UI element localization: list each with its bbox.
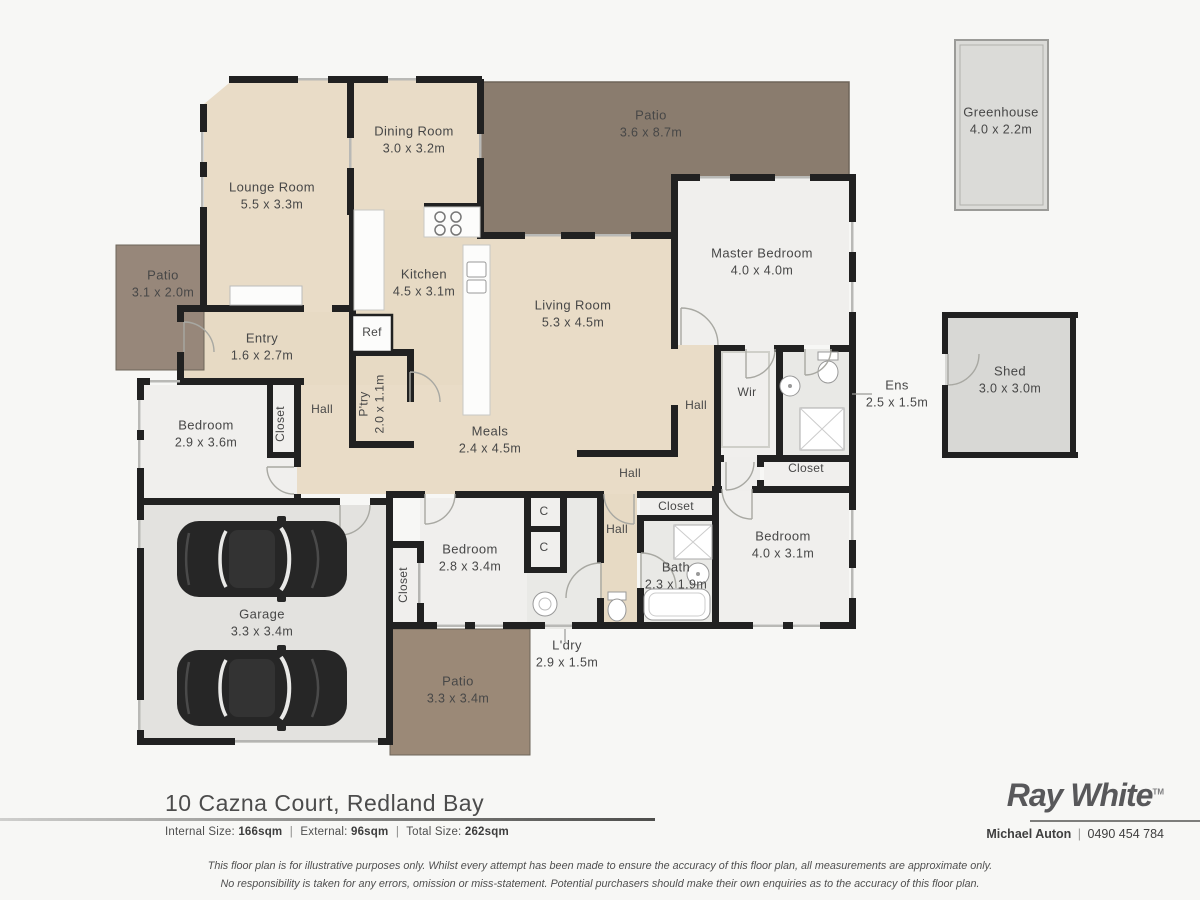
car-icon [177,645,347,731]
kitchen-counter [354,210,384,310]
shed-structure [942,312,1078,458]
internal-size-value: 166sqm [238,826,282,838]
internal-size-label: Internal Size: [165,826,235,838]
external-size-label: External: [300,826,347,838]
disclaimer-line-2: No responsibility is taken for any error… [0,876,1200,894]
ray-white-logo: Ray WhiteTM [1007,777,1164,814]
address-title: 10 Cazna Court, Redland Bay [165,790,484,817]
toilet-icon [818,352,838,360]
sink-icon [467,262,486,277]
separator: | [286,826,297,838]
external-size-value: 96sqm [351,826,388,838]
disclaimer-line-1: This floor plan is for illustrative purp… [0,858,1200,876]
total-size-label: Total Size: [406,826,461,838]
trademark-symbol: TM [1152,787,1164,796]
divider-line-right [1030,820,1200,822]
washer-icon [533,592,557,616]
separator: | [392,826,403,838]
size-summary: Internal Size: 166sqm | External: 96sqm … [165,826,509,838]
total-size-value: 262sqm [465,826,509,838]
disclaimer: This floor plan is for illustrative purp… [0,858,1200,894]
floor-plan-drawing [0,0,1200,900]
greenhouse-structure [955,40,1048,210]
agent-info: Michael Auton | 0490 454 784 [986,827,1164,841]
car-icon [177,516,347,602]
agent-name: Michael Auton [986,827,1071,841]
divider-line-left [0,818,655,821]
sideboard [230,286,302,305]
separator: | [1075,827,1084,841]
agent-phone: 0490 454 784 [1088,827,1164,841]
floor-plan-flyer: Lounge Room5.5 x 3.3mDining Room3.0 x 3.… [0,0,1200,900]
fridge-box [352,315,392,352]
